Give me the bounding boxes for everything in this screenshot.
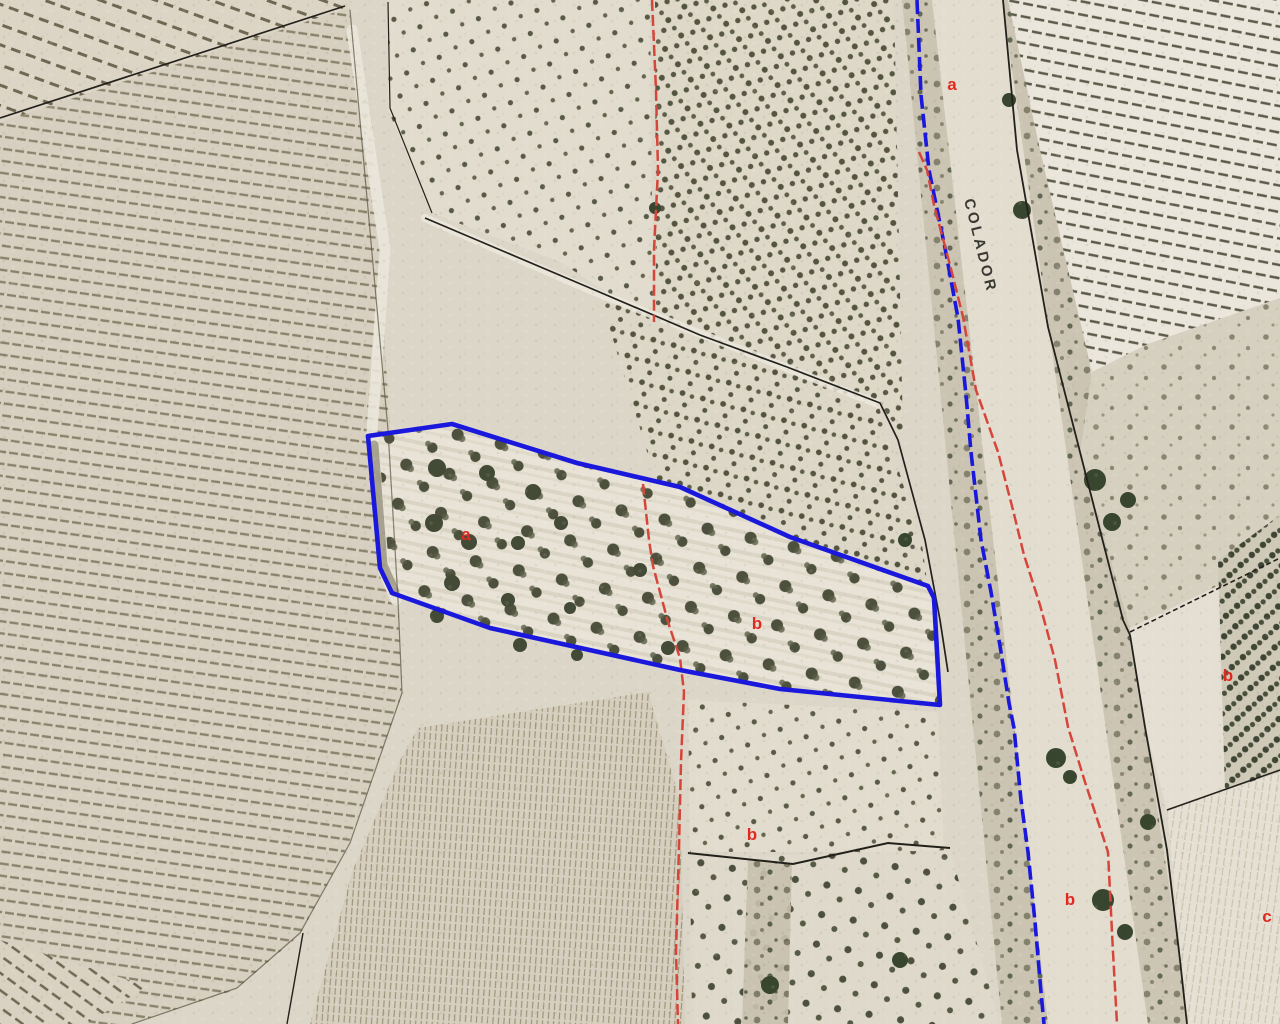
terrain-layer [0,0,1280,1024]
cadastral-aerial-viewport[interactable]: COLADOR aabbbbc [0,0,1280,1024]
subparcel-label-a: a [461,525,471,544]
subparcel-label-a: a [947,75,957,94]
photo-grain [0,0,1280,1024]
subparcel-label-c: c [1262,907,1271,926]
aerial-map: COLADOR aabbbbc [0,0,1280,1024]
subparcel-label-b: b [1223,666,1233,685]
subparcel-label-b: b [752,614,762,633]
subparcel-label-b: b [747,825,757,844]
subparcel-label-b: b [1065,890,1075,909]
